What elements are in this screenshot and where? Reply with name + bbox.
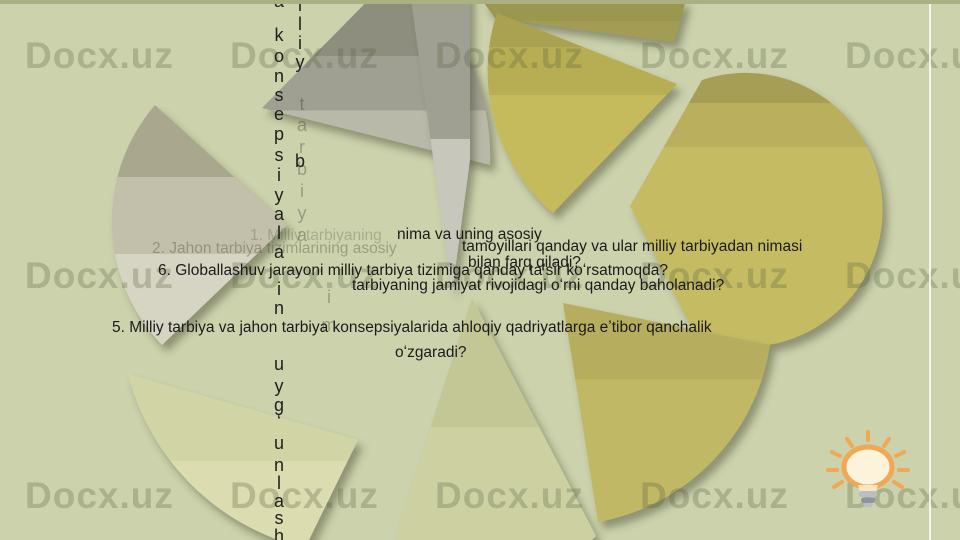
title-letter-col1: a (274, 205, 284, 223)
title-letter-col1: y (275, 377, 284, 395)
title-letter-col1: s (275, 509, 284, 527)
divider-line (929, 0, 931, 540)
title-letter-col2: i (298, 34, 302, 52)
title-letter-col2_ghost: i (300, 182, 304, 200)
question-5-line2: oʻzgaradi? (395, 344, 467, 362)
title-letter-col2_ghost: r (299, 138, 305, 156)
title-letter-col1: i (277, 166, 281, 184)
lightbulb-icon (824, 430, 914, 510)
title-letter-col1: n (274, 67, 284, 85)
title-letter-col1: k (275, 26, 284, 44)
title-letter-col1: e (274, 105, 284, 123)
title-letter-col2_ghost: b (297, 160, 307, 178)
title-letter-col1: s (275, 86, 284, 104)
slide-canvas: Docx.uzDocx.uzDocx.uzDocx.uzDocx.uzDocx.… (0, 0, 960, 540)
title-letter-col1: p (274, 125, 284, 143)
title-letter-col1: y (275, 186, 284, 204)
title-letter-col2_ghost: y (298, 204, 307, 222)
title-letter-col3_ghost: i (327, 288, 331, 306)
question-5-line1: 5. Milliy tarbiya va jahon tarbiya konse… (112, 319, 712, 337)
title-letter-col1: n (274, 456, 284, 474)
title-letter-col1: o (274, 47, 284, 65)
title-letter-col1: h (274, 527, 284, 540)
title-letter-col2_ghost: t (299, 95, 304, 113)
title-letter-col2: y (296, 53, 305, 71)
question-3-fragment: tarbiyaning jamiyat rivojidagi oʻrni qan… (352, 277, 724, 295)
title-letter-col2_ghost: a (297, 116, 307, 134)
title-letter-col2: l (298, 15, 302, 33)
bulb-neck (858, 485, 878, 492)
title-letter-col1: u (274, 434, 284, 452)
title-letter-col1: n (274, 299, 284, 317)
question-2-ghost: 2. Jahon tarbiya tizimlarining asosiy (152, 240, 397, 258)
title-letter-col1: i (277, 280, 281, 298)
title-letter-col1: ʻ (277, 413, 281, 431)
title-letter-col1: l (277, 474, 281, 492)
title-letter-col1: u (274, 355, 284, 373)
bulb-glass (844, 447, 892, 487)
top-border (0, 0, 960, 4)
bulb-base-top (859, 491, 877, 497)
bulb-base-mid (861, 498, 875, 504)
bulb-base-tip (864, 503, 873, 507)
title-letter-col1: s (275, 146, 284, 164)
